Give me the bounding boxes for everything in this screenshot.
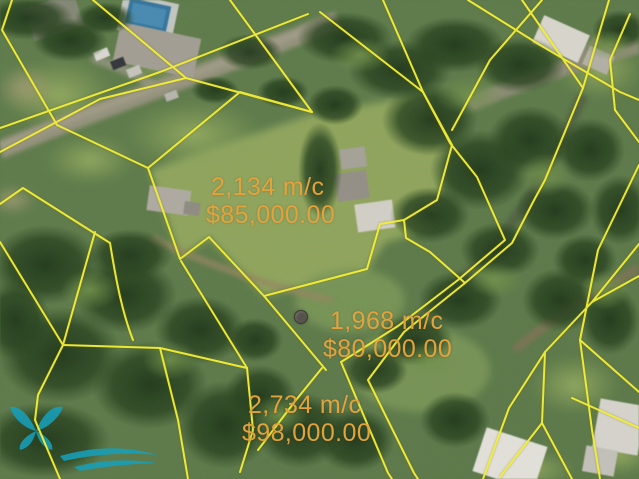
parcel-area-text: 2,734 m/c bbox=[248, 391, 371, 419]
aerial-map-viewport[interactable]: 2,134 m/c $85,000.00 1,968 m/c $80,000.0… bbox=[0, 0, 639, 479]
parcel-area-text: 1,968 m/c bbox=[330, 307, 452, 335]
parcel-label: 1,968 m/c $80,000.00 bbox=[323, 307, 452, 363]
parcel-label: 2,734 m/c $98,000.00 bbox=[242, 391, 371, 447]
parcel-price-text: $80,000.00 bbox=[323, 335, 452, 363]
parcel-price-text: $85,000.00 bbox=[206, 201, 335, 229]
parcel-price-text: $98,000.00 bbox=[242, 419, 371, 447]
parcel-label: 2,134 m/c $85,000.00 bbox=[206, 173, 335, 229]
point-marker[interactable] bbox=[294, 310, 308, 324]
parcel-area-text: 2,134 m/c bbox=[211, 173, 335, 201]
